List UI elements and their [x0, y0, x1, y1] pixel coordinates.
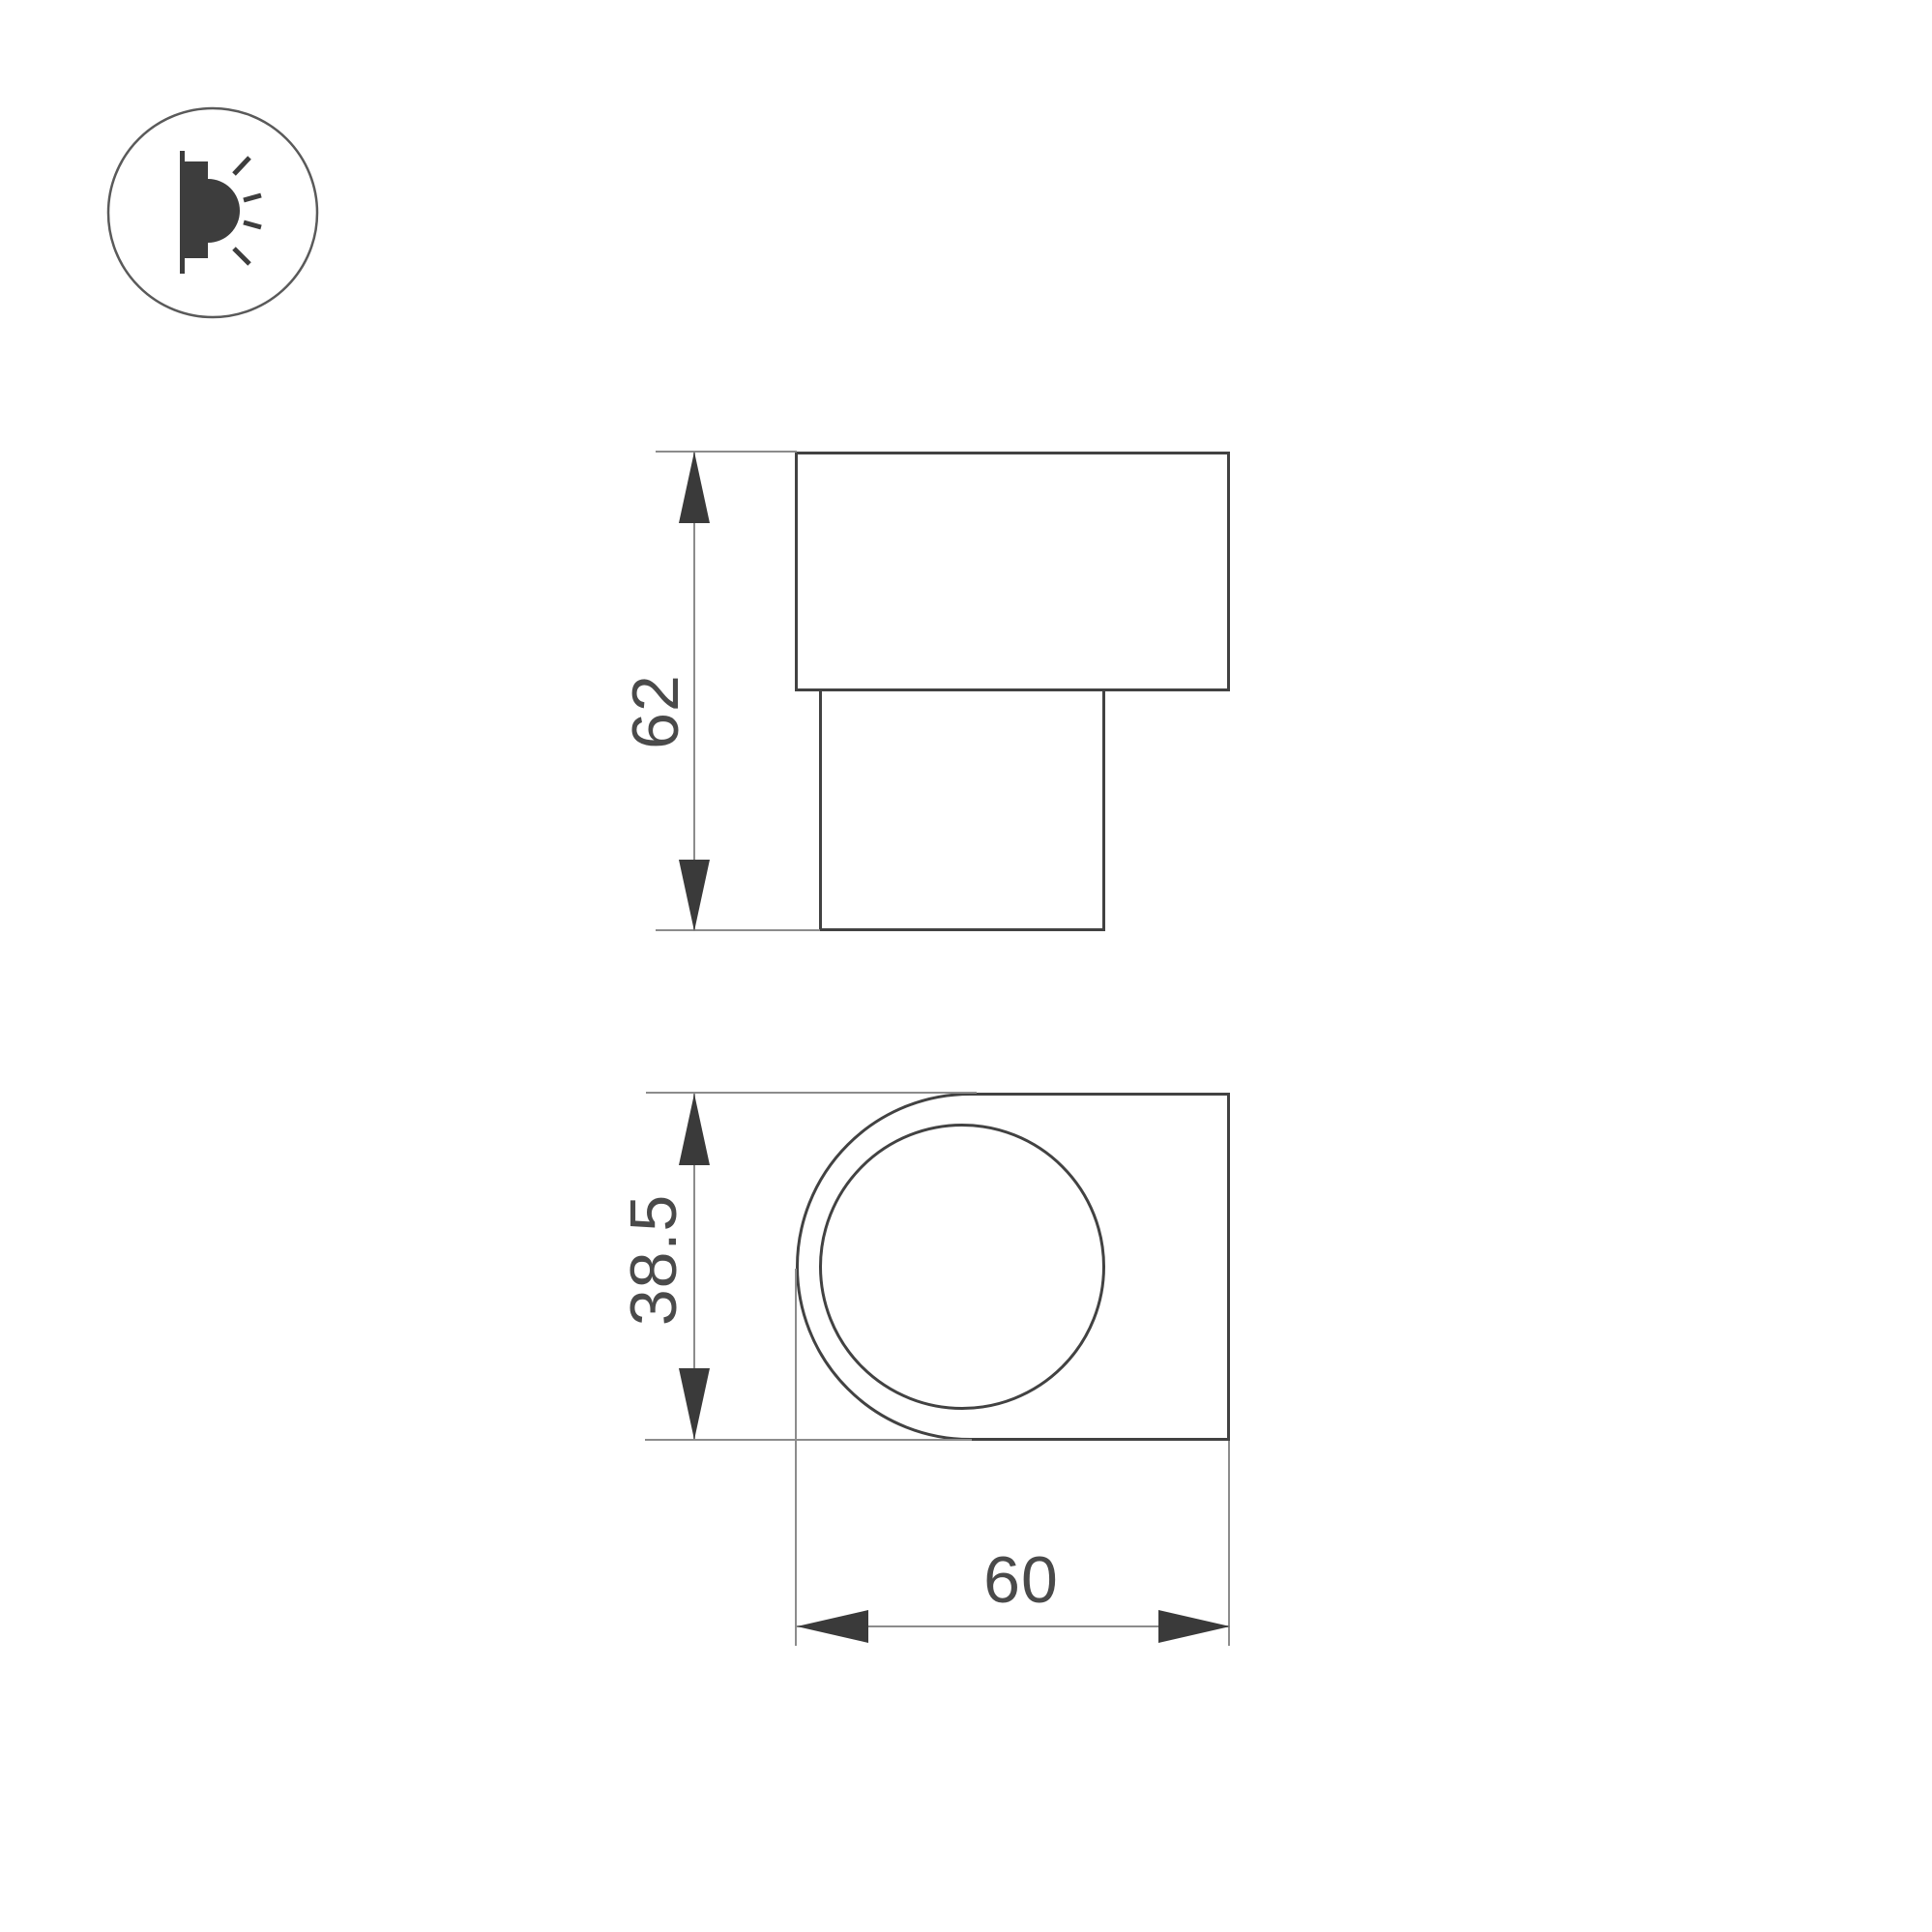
extension-line-top	[656, 451, 797, 453]
dimension-drawing-canvas: 62 38.5 60	[0, 0, 1932, 1932]
icon-wall-line	[180, 151, 185, 274]
arrowhead-down-icon	[679, 1368, 710, 1440]
arrowhead-right-icon	[1158, 1610, 1230, 1643]
side-view-base-outline	[819, 691, 1105, 931]
arrowhead-up-icon	[679, 1094, 710, 1165]
extension-line-left	[795, 1269, 797, 1646]
arrowhead-up-icon	[679, 452, 710, 523]
wall-lamp-light-icon	[87, 87, 338, 338]
front-view-lens-circle	[819, 1124, 1105, 1410]
height-dimension-label: 62	[623, 674, 688, 749]
width-dimension-label: 60	[983, 1547, 1059, 1613]
depth-dimension-label: 38.5	[621, 1194, 687, 1326]
side-view-head-outline	[795, 452, 1230, 691]
arrowhead-down-icon	[679, 860, 710, 931]
icon-lamp-body	[185, 161, 208, 258]
arrowhead-left-icon	[797, 1610, 868, 1643]
